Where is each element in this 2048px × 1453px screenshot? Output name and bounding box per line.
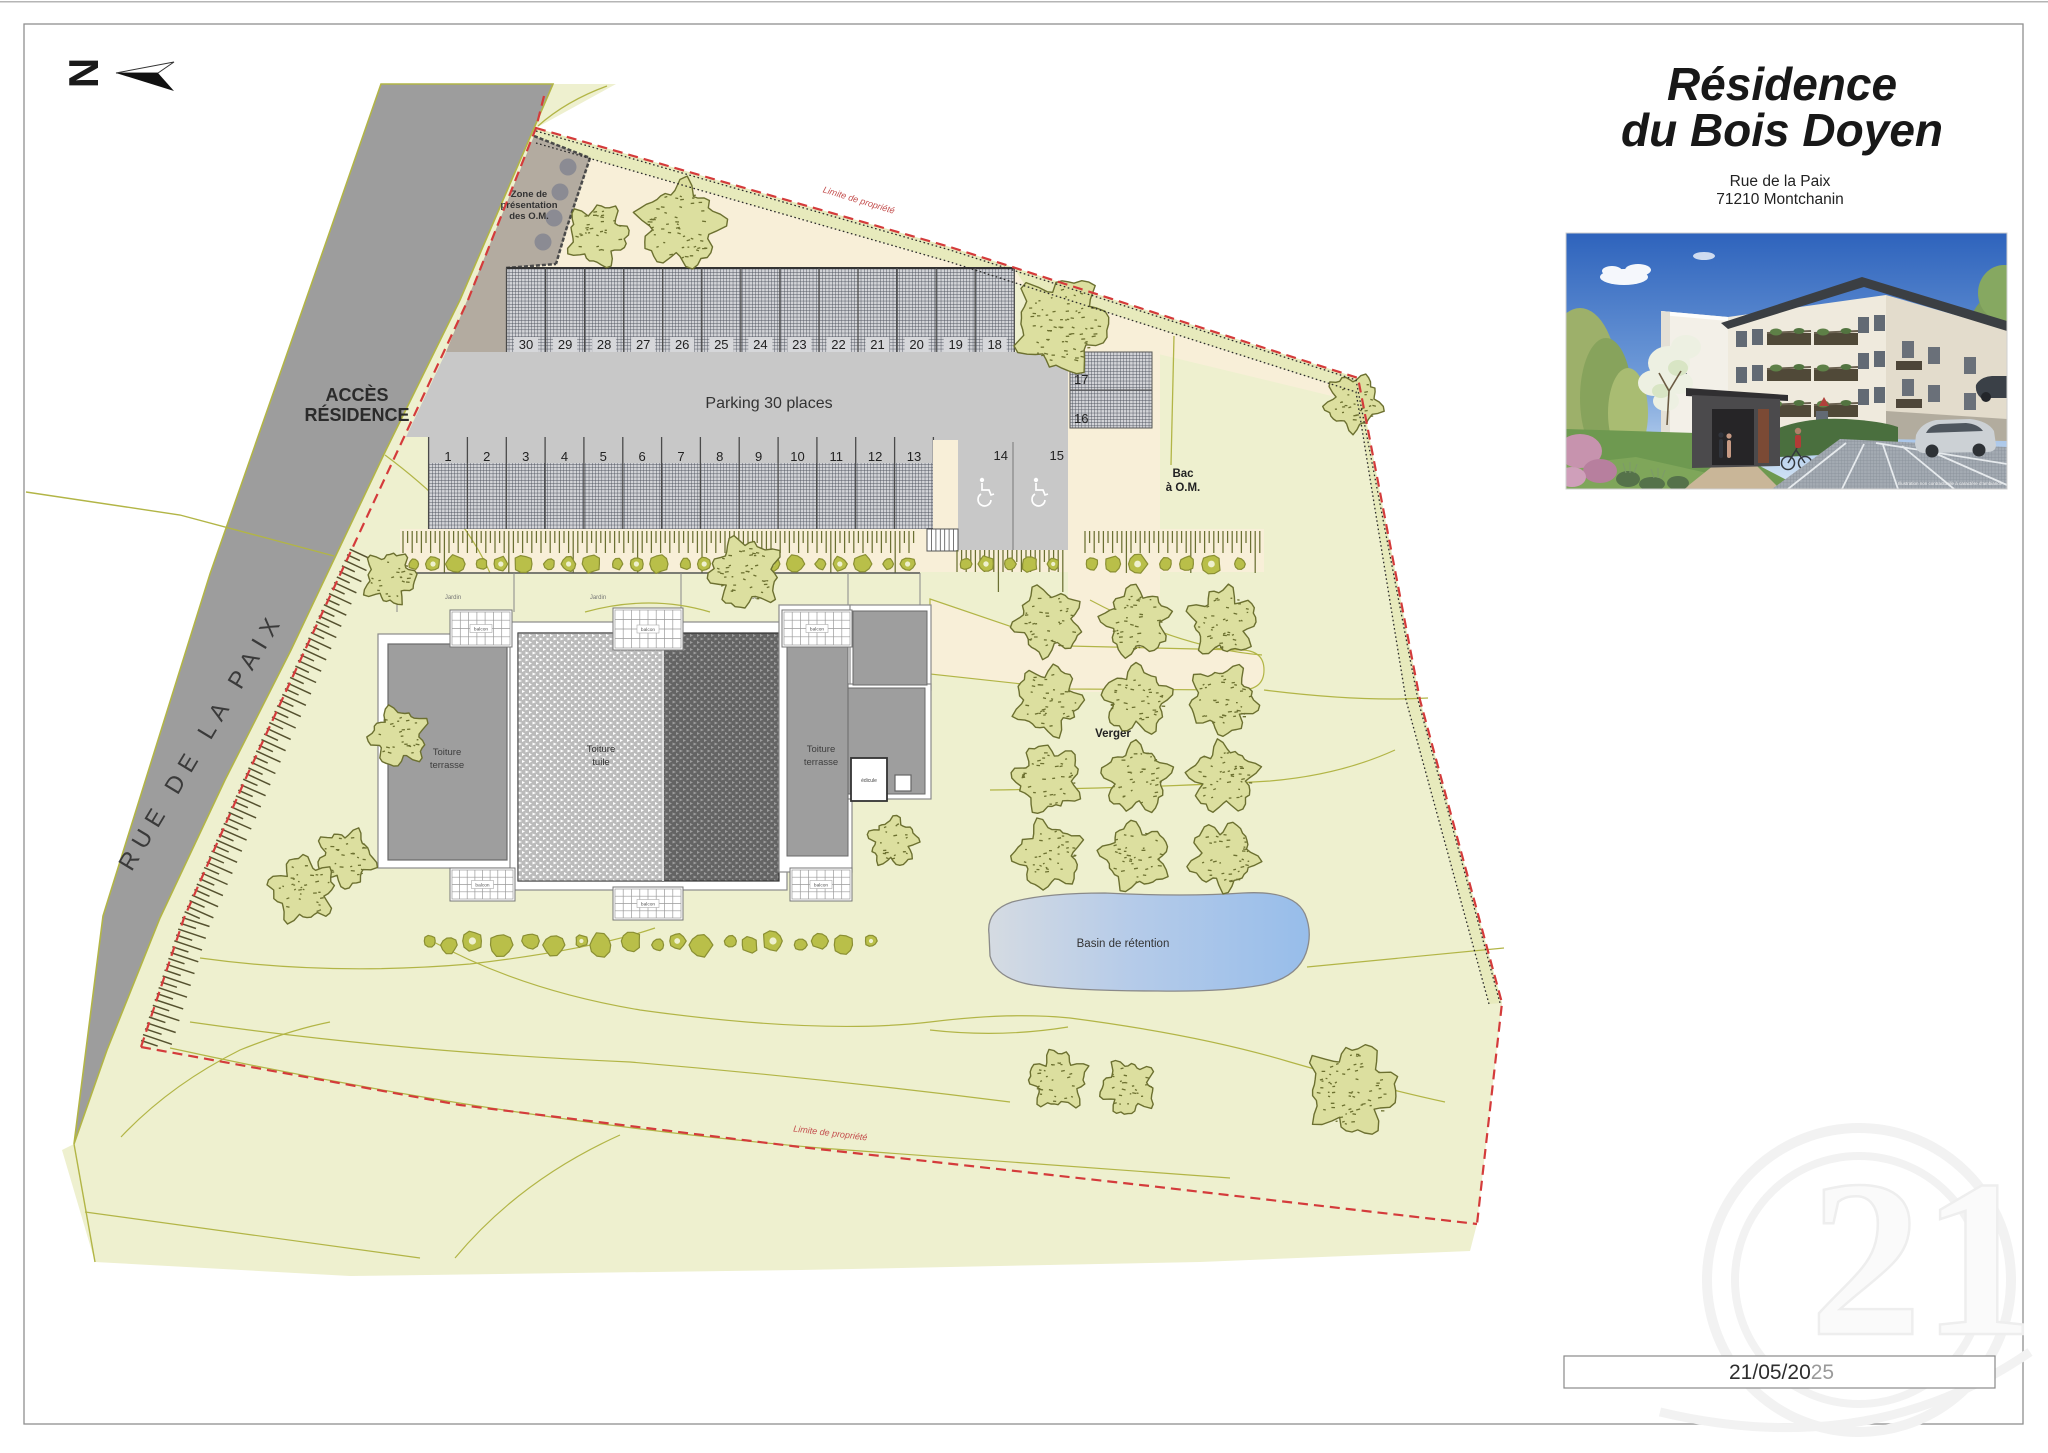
svg-text:Toiture: Toiture [587, 744, 616, 755]
svg-text:Jardin: Jardin [590, 595, 606, 601]
svg-text:terrasse: terrasse [804, 757, 838, 768]
svg-text:16: 16 [1074, 411, 1088, 426]
svg-text:ACCÈS: ACCÈS [325, 384, 388, 405]
svg-text:22: 22 [831, 337, 845, 352]
svg-text:Bac: Bac [1172, 468, 1194, 480]
svg-text:2: 2 [483, 449, 490, 464]
svg-text:Illustration non contractuelle: Illustration non contractuelle à caractè… [1898, 481, 2003, 486]
svg-text:balcon: balcon [474, 627, 488, 633]
svg-text:4: 4 [561, 449, 568, 464]
svg-text:3: 3 [522, 449, 529, 464]
svg-text:Jardin: Jardin [445, 595, 461, 601]
svg-text:28: 28 [597, 337, 611, 352]
svg-text:des O.M.: des O.M. [509, 211, 549, 222]
svg-text:30: 30 [519, 337, 533, 352]
svg-text:15: 15 [1050, 448, 1064, 463]
svg-text:balcon: balcon [475, 883, 489, 889]
svg-text:11: 11 [830, 449, 844, 464]
svg-text:19: 19 [948, 337, 962, 352]
svg-text:21: 21 [1810, 1133, 2035, 1383]
svg-text:25: 25 [714, 337, 728, 352]
svg-text:édicule: édicule [861, 778, 877, 784]
svg-text:18: 18 [987, 337, 1001, 352]
svg-text:26: 26 [675, 337, 689, 352]
svg-text:7: 7 [677, 449, 684, 464]
svg-text:12: 12 [868, 449, 882, 464]
svg-text:balcon: balcon [641, 902, 655, 908]
svg-text:Basin de rétention: Basin de rétention [1077, 938, 1170, 950]
svg-text:RÉSIDENCE: RÉSIDENCE [304, 404, 409, 425]
svg-text:27: 27 [636, 337, 650, 352]
svg-text:23: 23 [792, 337, 806, 352]
svg-text:29: 29 [558, 337, 572, 352]
svg-text:Rue de la Paix: Rue de la Paix [1730, 173, 1831, 190]
svg-text:14: 14 [994, 448, 1008, 463]
svg-text:Résidence: Résidence [1667, 58, 1897, 110]
svg-text:balcon: balcon [814, 883, 828, 889]
svg-text:terrasse: terrasse [430, 760, 464, 771]
svg-text:8: 8 [716, 449, 723, 464]
svg-text:9: 9 [755, 449, 762, 464]
svg-text:Toiture: Toiture [807, 744, 836, 755]
svg-text:20: 20 [909, 337, 923, 352]
svg-text:21/05/2025: 21/05/2025 [1729, 1361, 1834, 1384]
svg-text:balcon: balcon [641, 627, 655, 633]
svg-text:balcon: balcon [810, 627, 824, 633]
svg-text:1: 1 [444, 449, 451, 464]
svg-text:Parking 30 places: Parking 30 places [705, 395, 832, 412]
svg-text:du Bois Doyen: du Bois Doyen [1621, 104, 1943, 156]
svg-text:5: 5 [600, 449, 607, 464]
svg-text:Toiture: Toiture [433, 747, 462, 758]
svg-text:13: 13 [907, 449, 921, 464]
svg-text:71210 Montchanin: 71210 Montchanin [1716, 191, 1844, 208]
svg-text:N: N [60, 58, 107, 88]
svg-text:Zone de: Zone de [511, 189, 547, 200]
svg-text:tuile: tuile [592, 757, 609, 768]
svg-text:21: 21 [870, 337, 884, 352]
svg-text:6: 6 [638, 449, 645, 464]
svg-text:à O.M.: à O.M. [1166, 482, 1201, 494]
svg-text:24: 24 [753, 337, 767, 352]
svg-text:présentation: présentation [500, 200, 557, 211]
svg-text:10: 10 [790, 449, 804, 464]
